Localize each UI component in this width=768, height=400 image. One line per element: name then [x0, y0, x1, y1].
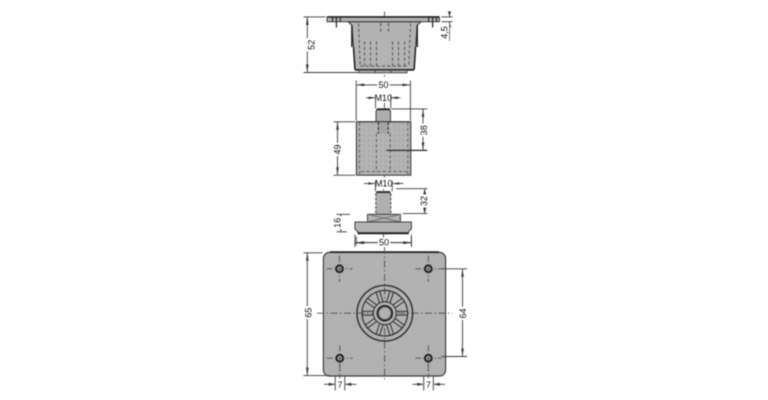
- svg-text:50: 50: [378, 80, 388, 90]
- svg-text:65: 65: [304, 308, 314, 318]
- svg-text:50: 50: [379, 238, 389, 248]
- svg-text:64: 64: [458, 308, 468, 318]
- svg-text:38: 38: [419, 125, 429, 135]
- svg-text:7: 7: [338, 379, 343, 389]
- svg-text:7: 7: [426, 379, 431, 389]
- svg-text:M10: M10: [374, 93, 392, 103]
- svg-text:32: 32: [419, 196, 429, 206]
- svg-text:16: 16: [332, 218, 342, 228]
- svg-text:M10: M10: [375, 179, 393, 189]
- svg-text:49: 49: [333, 144, 343, 154]
- svg-text:52: 52: [307, 40, 317, 50]
- svg-text:4,5: 4,5: [440, 26, 450, 39]
